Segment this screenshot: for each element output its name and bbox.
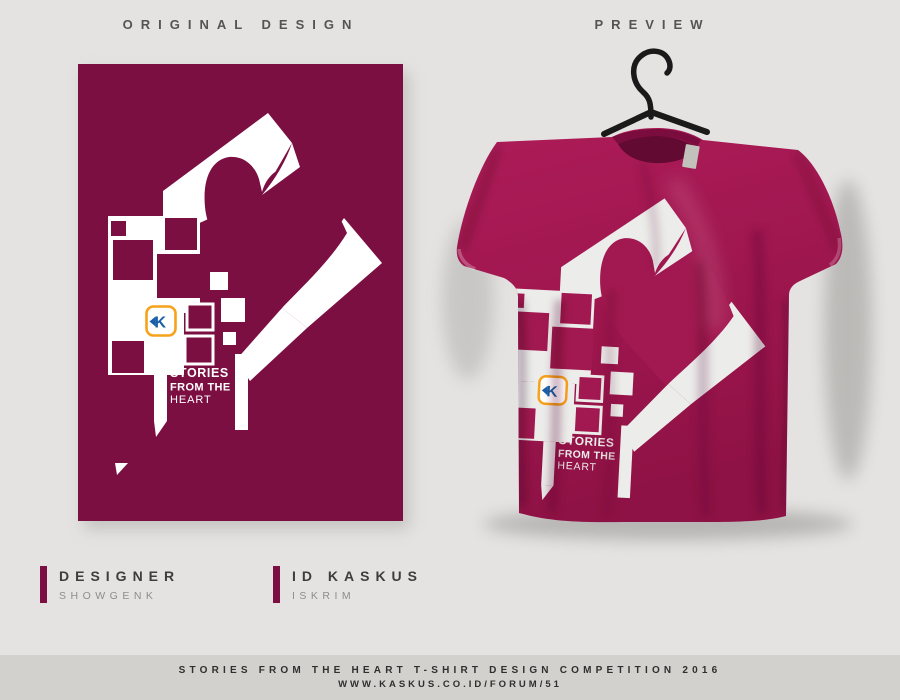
footer-bar: STORIES FROM THE HEART T-SHIRT DESIGN CO…: [0, 655, 900, 700]
kaskus-id-value: ISKRIM: [292, 590, 423, 602]
designer-credit: DESIGNER SHOWGENK: [40, 566, 180, 603]
design-submission-sheet: ORIGINAL DESIGN PREVIEW: [0, 0, 900, 700]
designer-label: DESIGNER: [59, 569, 180, 583]
tshirt-preview: [442, 51, 872, 547]
designer-value: SHOWGENK: [59, 590, 180, 602]
hanger-icon: [604, 51, 707, 134]
competition-url: WWW.KASKUS.CO.ID/FORUM/51: [338, 679, 562, 690]
kaskus-id-credit: ID KASKUS ISKRIM: [273, 566, 423, 603]
competition-title: STORIES FROM THE HEART T-SHIRT DESIGN CO…: [179, 665, 722, 676]
kaskus-id-label: ID KASKUS: [292, 569, 423, 583]
poster: [78, 64, 409, 529]
accent-bar: [40, 566, 47, 603]
accent-bar: [273, 566, 280, 603]
